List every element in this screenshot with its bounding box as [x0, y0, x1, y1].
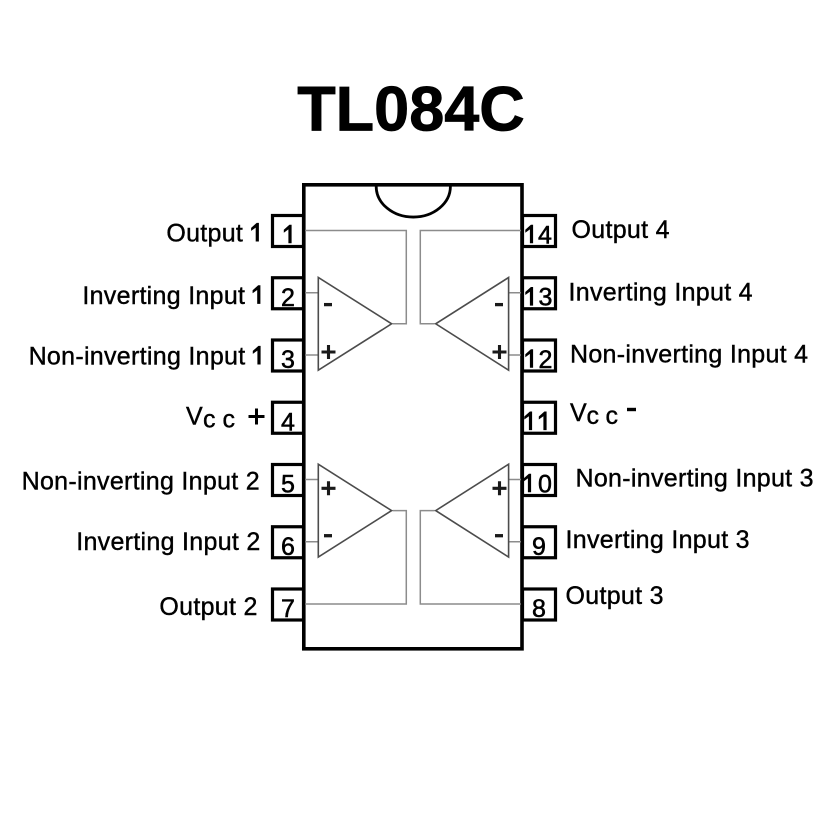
- svg-text:Output 3: Output 3: [566, 582, 664, 610]
- svg-text:c: c: [606, 402, 619, 430]
- svg-text:3: 3: [539, 284, 553, 312]
- svg-text:c: c: [587, 402, 600, 430]
- svg-text:Non-inverting Input 4: Non-inverting Input 4: [570, 341, 808, 369]
- svg-text:0: 0: [538, 470, 552, 498]
- svg-text:3: 3: [281, 346, 295, 374]
- svg-text:8: 8: [532, 595, 546, 623]
- svg-text:TL084C: TL084C: [297, 74, 525, 144]
- svg-text:5: 5: [281, 471, 295, 499]
- svg-text:Non-inverting Input: Non-inverting Input: [29, 343, 246, 371]
- svg-text:4: 4: [538, 221, 552, 249]
- svg-text:2: 2: [539, 346, 553, 374]
- svg-text:Non-inverting Input 3: Non-inverting Input 3: [576, 464, 814, 492]
- svg-text:6: 6: [281, 533, 295, 561]
- svg-text:Inverting Input 4: Inverting Input 4: [569, 278, 753, 306]
- svg-text:Inverting Input 3: Inverting Input 3: [566, 526, 750, 554]
- svg-text:Inverting Input 2: Inverting Input 2: [76, 528, 260, 556]
- svg-text:c: c: [223, 406, 236, 434]
- svg-text:Output 2: Output 2: [159, 593, 257, 621]
- svg-text:Inverting Input: Inverting Input: [82, 282, 245, 310]
- svg-text:Output 4: Output 4: [572, 216, 670, 244]
- svg-text:4: 4: [281, 408, 295, 436]
- svg-text:Output: Output: [166, 220, 243, 248]
- svg-text:Non-inverting Input 2: Non-inverting Input 2: [22, 467, 260, 495]
- svg-text:V: V: [186, 403, 203, 431]
- svg-text:V: V: [570, 399, 587, 427]
- svg-text:2: 2: [281, 284, 295, 312]
- svg-text:9: 9: [532, 533, 546, 561]
- svg-text:7: 7: [281, 595, 295, 623]
- svg-text:c: c: [203, 406, 216, 434]
